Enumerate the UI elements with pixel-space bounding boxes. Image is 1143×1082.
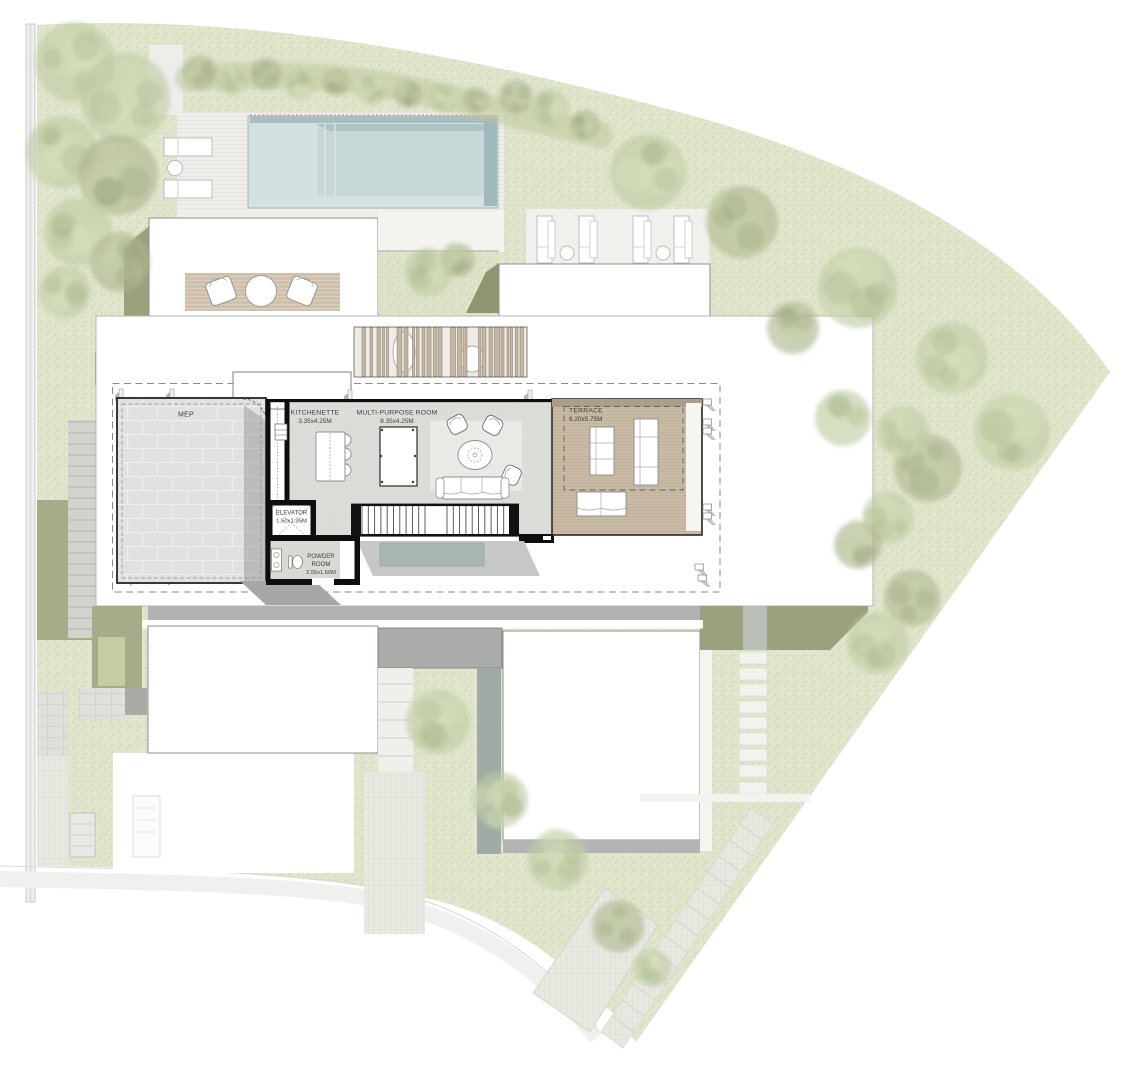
svg-text:6.20x5.75M: 6.20x5.75M <box>569 416 602 423</box>
svg-text:ELEVATOR: ELEVATOR <box>276 510 308 517</box>
svg-text:MULTI-PURPOSE ROOM: MULTI-PURPOSE ROOM <box>357 410 438 417</box>
svg-text:8.35x4.25M: 8.35x4.25M <box>380 418 413 425</box>
svg-text:POWDER: POWDER <box>307 553 335 560</box>
svg-text:MEP: MEP <box>178 412 194 419</box>
svg-text:KITCHENETTE: KITCHENETTE <box>291 410 340 417</box>
svg-text:1.50x1.35M: 1.50x1.35M <box>276 519 307 525</box>
svg-text:2.55x1.60M: 2.55x1.60M <box>306 570 336 576</box>
svg-text:TERRACE: TERRACE <box>569 408 603 415</box>
svg-text:3.35x4.25M: 3.35x4.25M <box>298 418 331 425</box>
svg-text:ROOM: ROOM <box>312 561 331 568</box>
